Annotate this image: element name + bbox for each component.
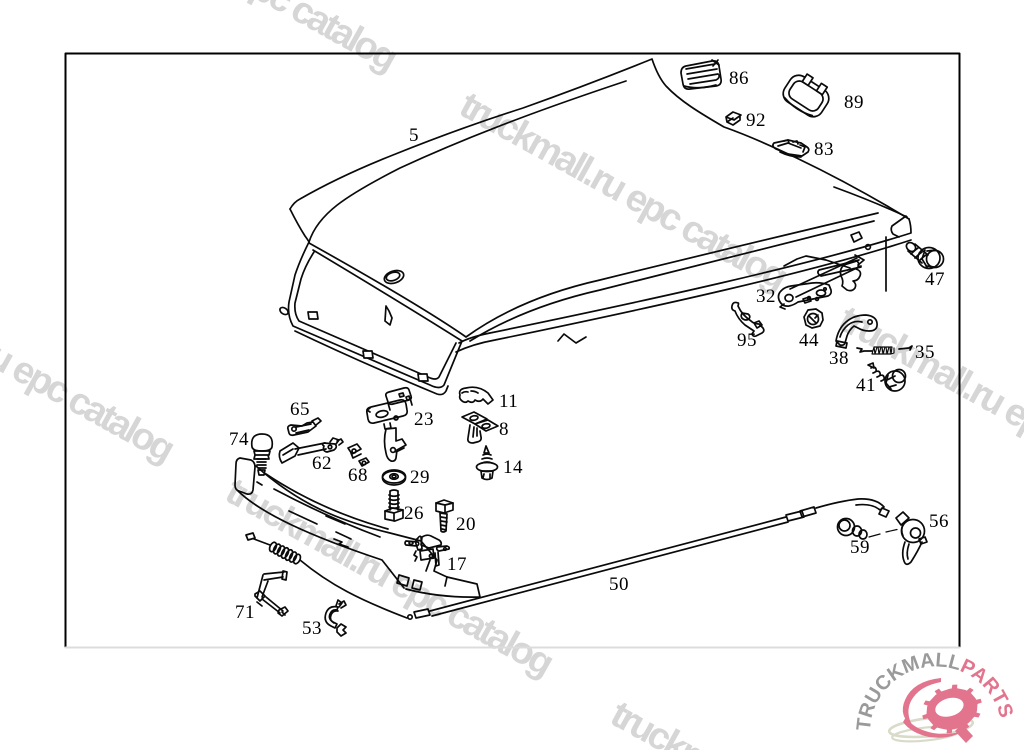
svg-text:44: 44 bbox=[799, 330, 819, 351]
svg-text:26: 26 bbox=[404, 503, 424, 524]
svg-text:83: 83 bbox=[814, 139, 834, 160]
svg-text:92: 92 bbox=[746, 110, 766, 131]
svg-text:65: 65 bbox=[290, 399, 310, 420]
svg-text:59: 59 bbox=[850, 537, 870, 558]
svg-text:11: 11 bbox=[499, 391, 518, 412]
svg-text:47: 47 bbox=[925, 269, 945, 290]
svg-text:23: 23 bbox=[414, 409, 434, 430]
svg-text:62: 62 bbox=[312, 453, 332, 474]
svg-text:8: 8 bbox=[499, 419, 509, 440]
svg-text:86: 86 bbox=[729, 68, 749, 89]
svg-text:71: 71 bbox=[235, 602, 255, 623]
svg-text:89: 89 bbox=[844, 92, 864, 113]
svg-text:20: 20 bbox=[456, 514, 476, 535]
svg-text:29: 29 bbox=[410, 467, 430, 488]
svg-text:74: 74 bbox=[229, 429, 249, 450]
svg-text:95: 95 bbox=[737, 330, 757, 351]
svg-text:53: 53 bbox=[302, 618, 322, 639]
svg-text:5: 5 bbox=[409, 125, 419, 146]
svg-text:35: 35 bbox=[915, 342, 935, 363]
svg-text:17: 17 bbox=[447, 554, 467, 575]
svg-text:50: 50 bbox=[609, 574, 629, 595]
svg-text:32: 32 bbox=[756, 286, 776, 307]
svg-text:68: 68 bbox=[348, 465, 368, 486]
svg-text:38: 38 bbox=[829, 348, 849, 369]
svg-text:56: 56 bbox=[929, 511, 949, 532]
svg-text:14: 14 bbox=[503, 457, 523, 478]
svg-text:41: 41 bbox=[856, 375, 876, 396]
